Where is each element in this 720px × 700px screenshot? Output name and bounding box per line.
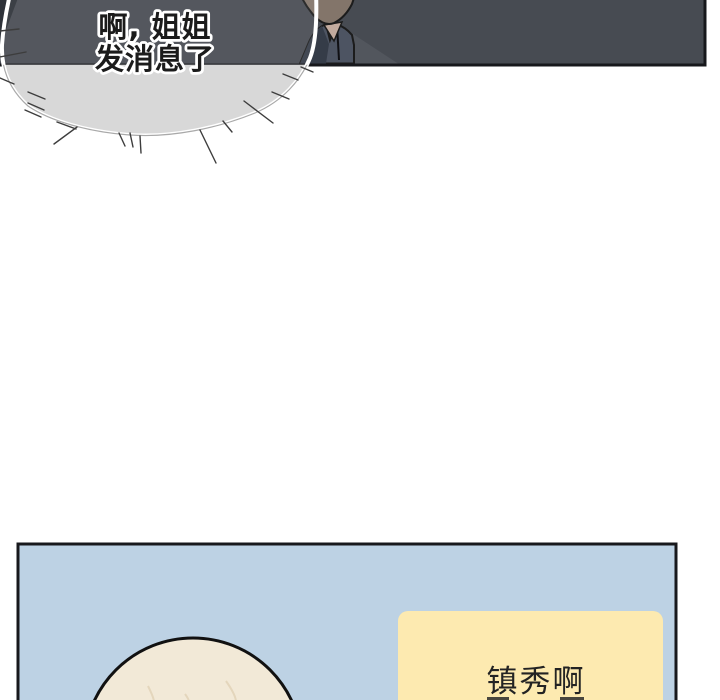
speech-bubble: 啊, 姐姐 发消息了 <box>0 0 316 163</box>
bubble-text-line-2: 发消息了 <box>94 42 215 76</box>
webtoon-page: 啊, 姐姐 发消息了 镇秀啊 <box>0 0 720 700</box>
bottom-panel: 镇秀啊 <box>18 544 676 700</box>
comic-canvas: 啊, 姐姐 发消息了 镇秀啊 <box>0 0 720 700</box>
bubble-text-line-1: 啊, 姐姐 <box>98 10 211 44</box>
caption-text: 镇秀啊 <box>487 664 586 700</box>
